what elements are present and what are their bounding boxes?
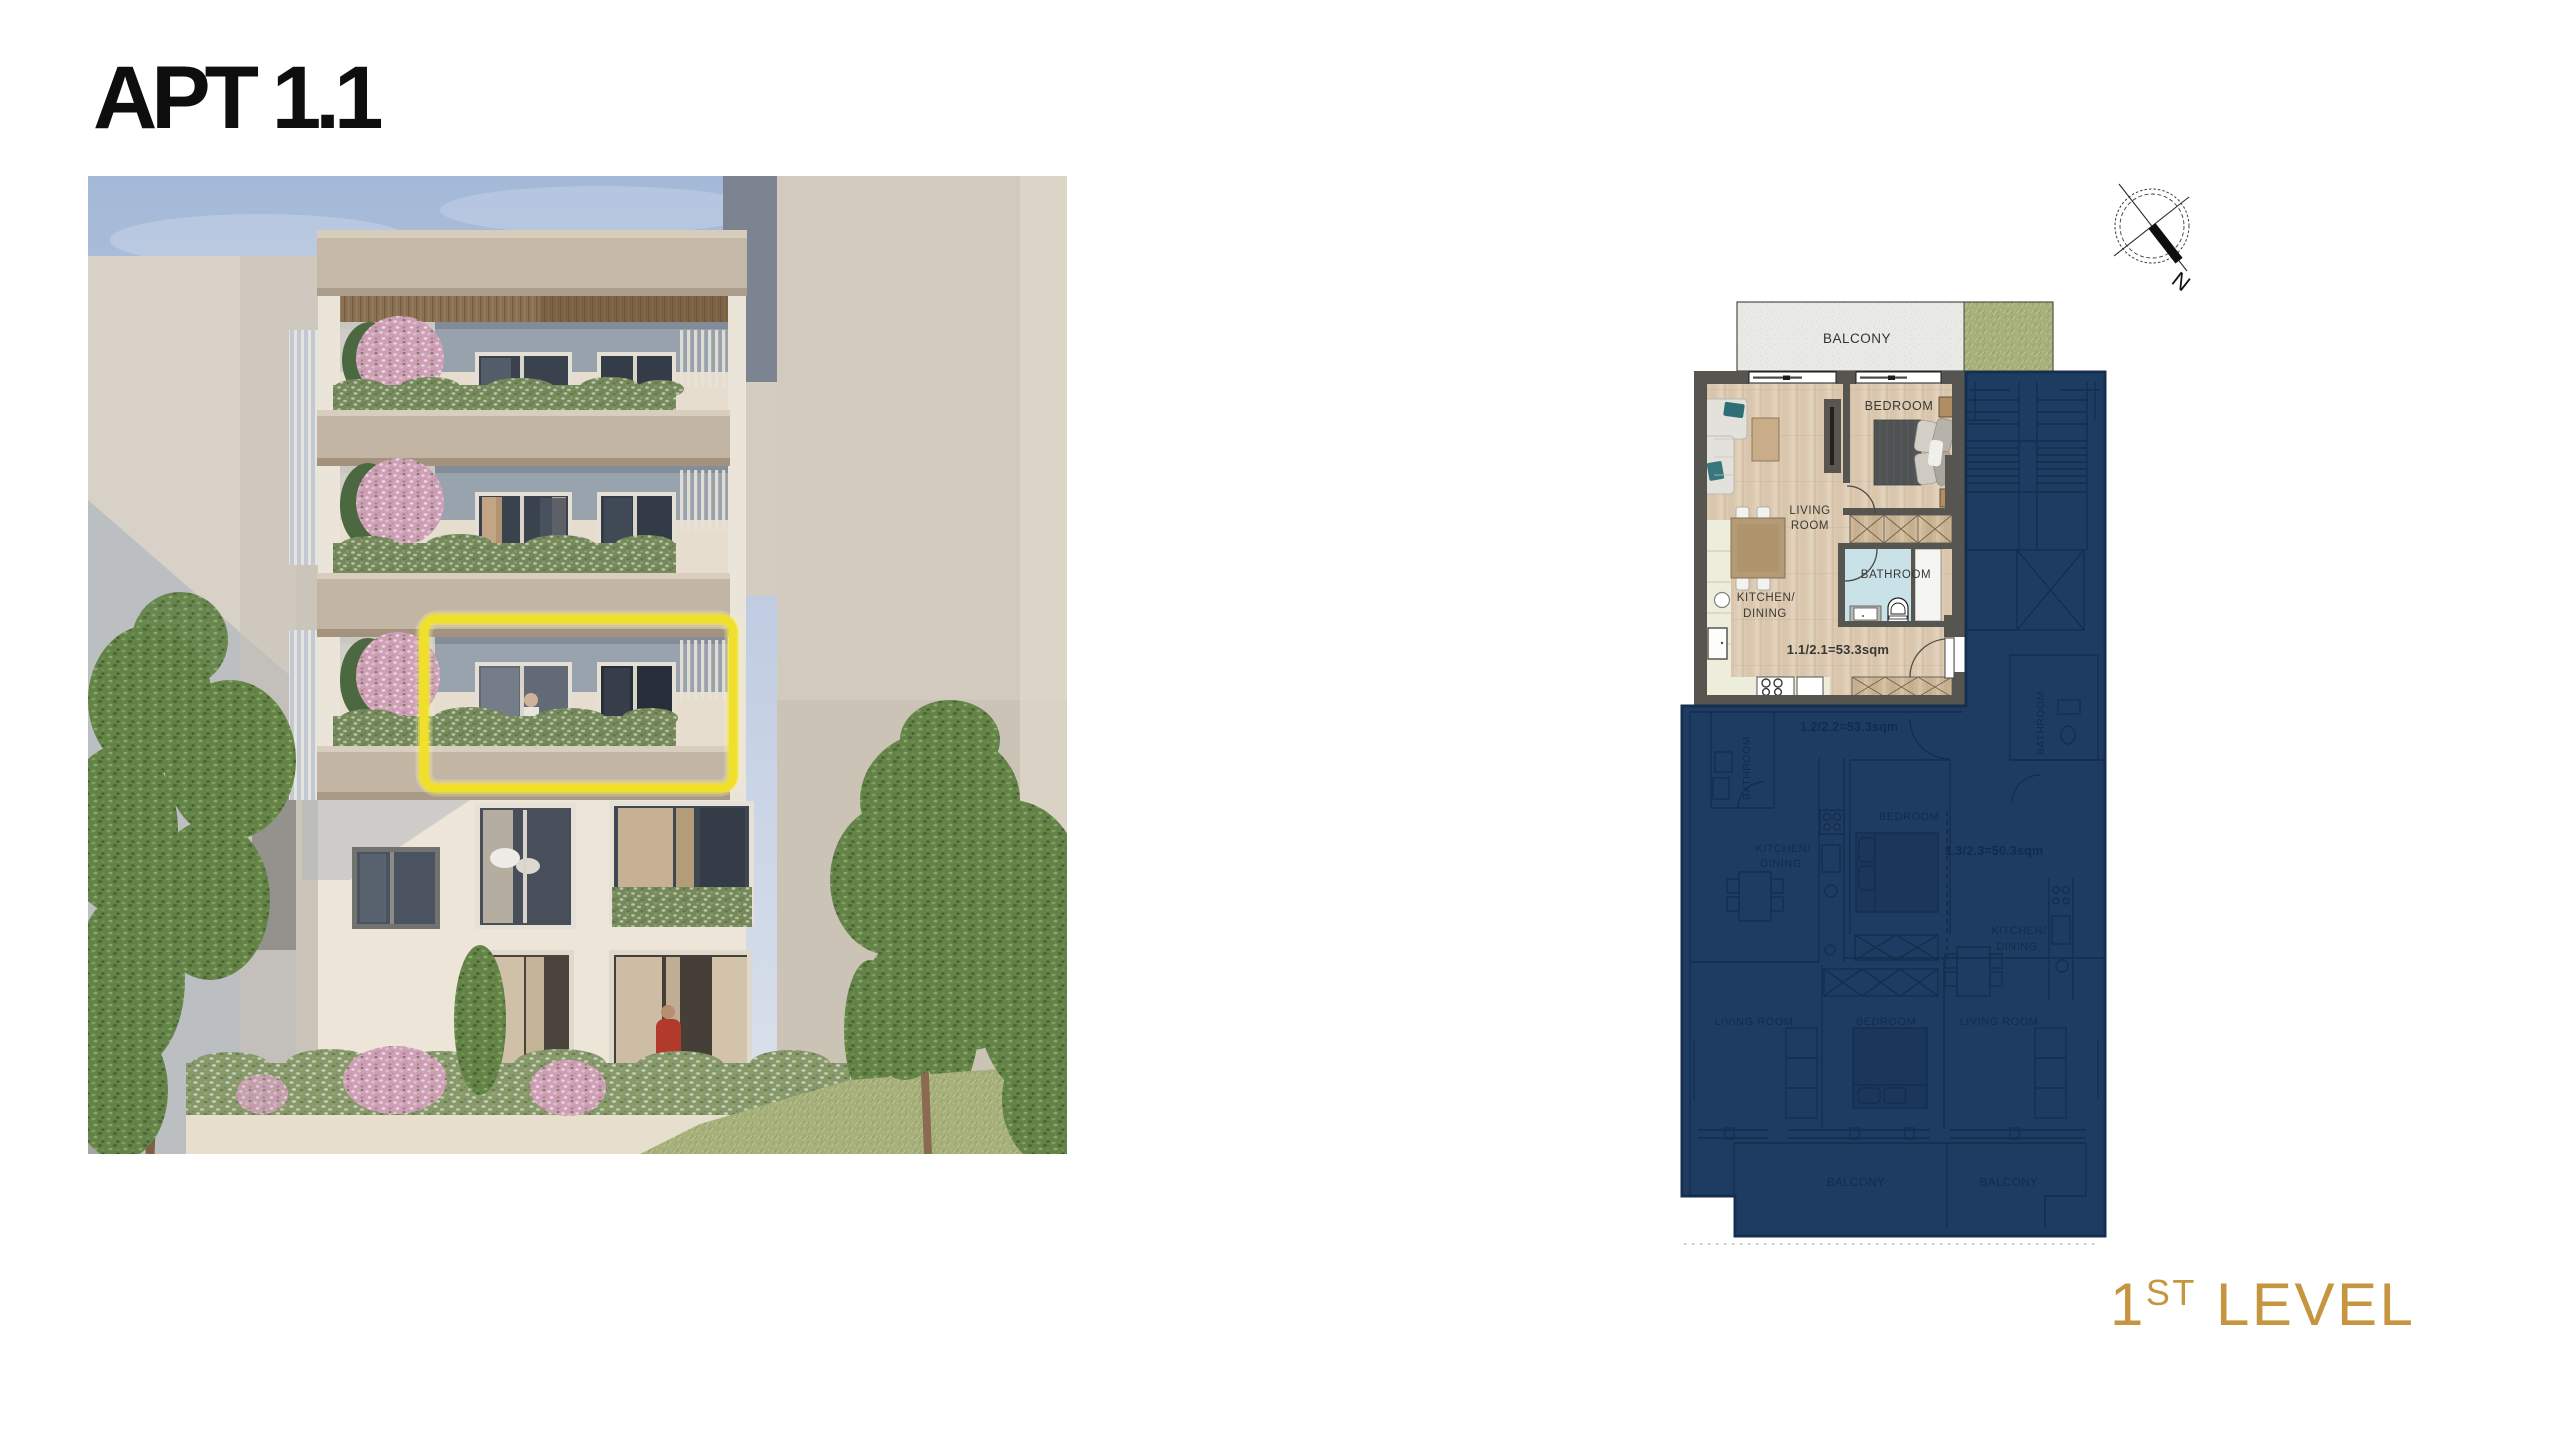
svg-text:KITCHEN/: KITCHEN/	[1755, 843, 1811, 855]
svg-text:BATHROOM: BATHROOM	[2035, 691, 2047, 755]
svg-text:1.3/2.3=50.3sqm: 1.3/2.3=50.3sqm	[1945, 844, 2044, 858]
svg-text:BEDROOM: BEDROOM	[1879, 811, 1939, 823]
svg-text:BALCONY: BALCONY	[1823, 331, 1891, 346]
svg-text:1.2/2.2=53.3sqm: 1.2/2.2=53.3sqm	[1800, 720, 1899, 734]
svg-text:LIVING ROOM: LIVING ROOM	[1960, 1016, 2039, 1028]
svg-text:APT 1.1: APT 1.1	[93, 47, 382, 147]
svg-text:BATHROOM: BATHROOM	[1741, 736, 1753, 800]
svg-text:BEDROOM: BEDROOM	[1856, 1016, 1916, 1028]
svg-text:BALCONY: BALCONY	[1827, 1177, 1885, 1189]
svg-text:DINING: DINING	[1743, 608, 1787, 620]
svg-text:ROOM: ROOM	[1791, 520, 1829, 532]
svg-text:BATHROOM: BATHROOM	[1861, 569, 1931, 581]
svg-text:KITCHEN/: KITCHEN/	[1737, 592, 1796, 604]
svg-text:BEDROOM: BEDROOM	[1865, 399, 1934, 413]
svg-text:DINING: DINING	[1760, 858, 1802, 870]
svg-text:1.1/2.1=53.3sqm: 1.1/2.1=53.3sqm	[1787, 642, 1889, 657]
svg-text:BALCONY: BALCONY	[1980, 1177, 2038, 1189]
svg-text:LIVING ROOM: LIVING ROOM	[1715, 1016, 1794, 1028]
svg-text:DINING: DINING	[1996, 941, 2038, 953]
svg-text:LIVING: LIVING	[1789, 505, 1830, 517]
svg-text:KITCHEN/: KITCHEN/	[1991, 925, 2047, 937]
